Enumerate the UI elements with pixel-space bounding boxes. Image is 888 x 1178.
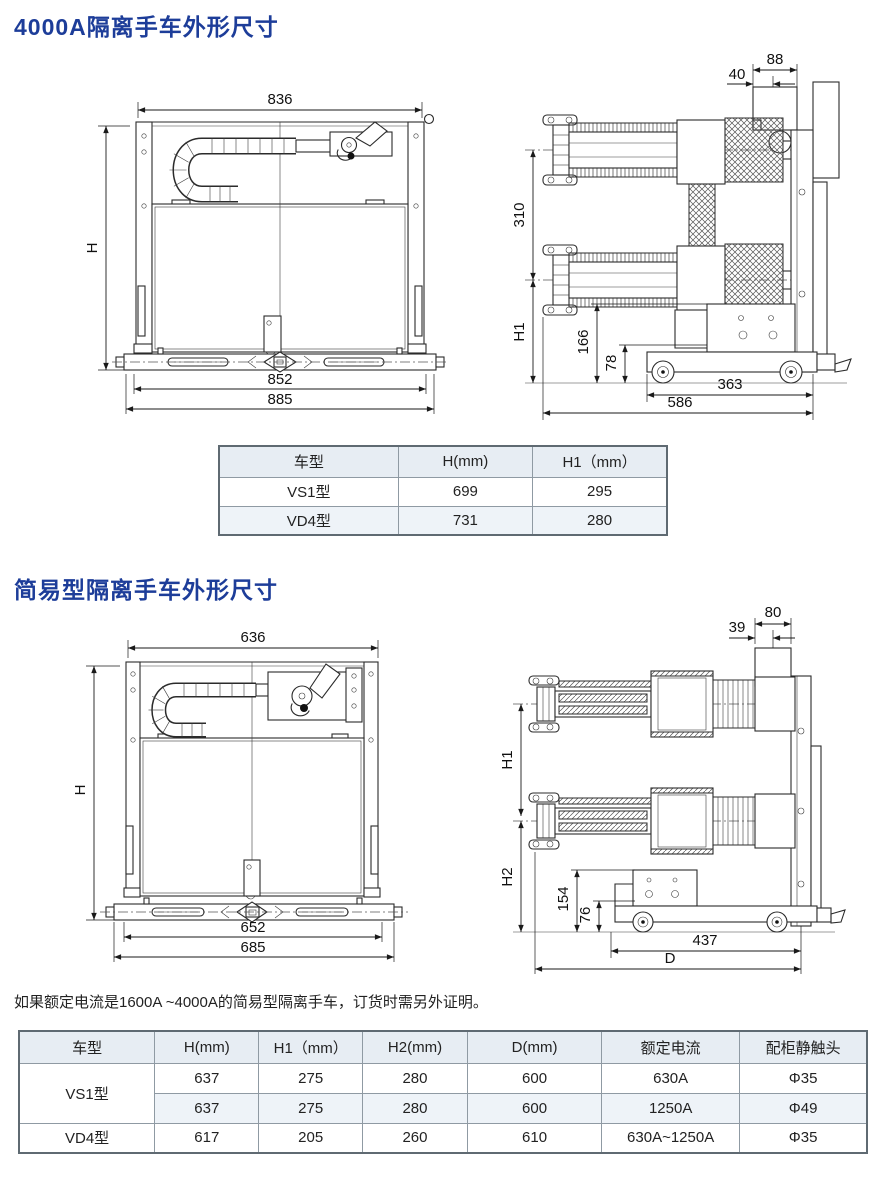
release-hook <box>831 910 845 923</box>
drawing-4000a-front-view: 836 H 852 885 <box>80 86 465 426</box>
table-row: VD4型 617 205 260 610 630A~1250A Φ35 <box>19 1123 867 1153</box>
dim-width-overall: 685 <box>240 939 265 956</box>
column-header: H(mm) <box>155 1031 259 1063</box>
dim-h2: H2 <box>499 867 516 886</box>
column-header: 车型 <box>219 446 398 477</box>
table-cell: 617 <box>155 1123 259 1153</box>
table-cell: 699 <box>398 477 532 506</box>
table-cell: 637 <box>155 1063 259 1093</box>
table-cell: Φ35 <box>740 1063 867 1093</box>
table-cell: 280 <box>362 1063 467 1093</box>
dim-offset-large: 80 <box>765 604 782 621</box>
dim-depth-inner: 363 <box>717 376 742 393</box>
column-header: 配柜静触头 <box>740 1031 867 1063</box>
table-cell: 600 <box>468 1063 602 1093</box>
table-simple-dimensions: 车型 H(mm) H1（mm） H2(mm) D(mm) 额定电流 配柜静触头 … <box>18 1030 868 1154</box>
dim-width-top: 636 <box>240 629 265 646</box>
table-cell: VD4型 <box>19 1123 155 1153</box>
dim-height: H <box>84 243 101 254</box>
column-header: D(mm) <box>468 1031 602 1063</box>
bottom-plate <box>264 316 281 355</box>
table-cell: VD4型 <box>219 506 398 535</box>
dim-height: H <box>72 785 89 796</box>
dim-depth-inner: 437 <box>692 932 717 949</box>
dim-depth-overall: 586 <box>667 394 692 411</box>
table-cell: VS1型 <box>19 1063 155 1123</box>
dim-depth-overall: D <box>665 950 676 967</box>
upper-pole <box>543 115 791 185</box>
table-row: VS1型 699 295 <box>219 477 667 506</box>
drawing-simple-side-view: 80 39 H1 H2 154 76 437 <box>485 596 885 991</box>
table-cell: Φ35 <box>740 1123 867 1153</box>
dim-bracket-height: 166 <box>575 329 592 354</box>
table-cell: 610 <box>468 1123 602 1153</box>
dim-pole-spacing: 310 <box>511 202 528 227</box>
upper-pole <box>529 671 795 737</box>
table-cell: 630A~1250A <box>602 1123 740 1153</box>
table-cell: 205 <box>259 1123 362 1153</box>
dim-offset-small: 40 <box>729 66 746 83</box>
table-cell: 280 <box>533 506 667 535</box>
dim-h1: H1 <box>499 750 516 769</box>
base-and-wheels <box>525 352 851 383</box>
drag-chain <box>149 683 257 738</box>
dim-h1: H1 <box>511 322 528 341</box>
table-cell: 275 <box>259 1093 362 1123</box>
bottom-plate <box>244 860 260 899</box>
latch-mechanism <box>296 122 392 160</box>
table-cell: 280 <box>362 1093 467 1123</box>
center-trunk <box>689 184 715 246</box>
section1-title: 4000A隔离手车外形尺寸 <box>14 8 279 42</box>
side-view-simple-svg: 80 39 H1 H2 154 76 437 <box>485 596 885 986</box>
lower-pole <box>529 788 795 854</box>
table-cell: 275 <box>259 1063 362 1093</box>
table-cell: 260 <box>362 1123 467 1153</box>
drag-chain <box>170 138 297 203</box>
base-rail <box>112 348 448 372</box>
release-hook <box>835 359 851 372</box>
table-cell: 1250A <box>602 1093 740 1123</box>
column-header: 车型 <box>19 1031 155 1063</box>
table-cell: 600 <box>468 1093 602 1123</box>
corner-tab <box>425 115 434 124</box>
catalog-page: 4000A隔离手车外形尺寸 <box>0 0 888 1178</box>
table-cell: 637 <box>155 1093 259 1123</box>
dim-base-height: 76 <box>577 907 594 924</box>
dim-base-height: 78 <box>603 355 620 372</box>
column-header: H1（mm） <box>259 1031 362 1063</box>
column-header: 额定电流 <box>602 1031 740 1063</box>
side-bracket <box>346 668 362 722</box>
column-header: H1（mm） <box>533 446 667 477</box>
dim-width-overall: 885 <box>267 391 292 408</box>
table-row: VD4型 731 280 <box>219 506 667 535</box>
dim-width-rail: 652 <box>240 919 265 936</box>
dim-width-rail: 852 <box>267 371 292 388</box>
front-view-4000a-svg: 836 H 852 885 <box>80 86 465 421</box>
order-note: 如果额定电流是1600A ~4000A的简易型隔离手车，订货时需另外证明。 <box>14 991 488 1012</box>
table-cell: Φ49 <box>740 1093 867 1123</box>
dim-offset-large: 88 <box>767 51 784 68</box>
side-view-4000a-svg: 88 40 310 H1 166 78 363 <box>495 42 888 422</box>
drawing-4000a-side-view: 88 40 310 H1 166 78 363 <box>495 42 888 427</box>
latch-mechanism <box>256 664 362 722</box>
dim-offset-small: 39 <box>729 619 746 636</box>
dim-width-top: 836 <box>267 91 292 108</box>
table-cell: 630A <box>602 1063 740 1093</box>
dim-bracket-height: 154 <box>555 886 572 911</box>
table-4000a-dimensions: 车型 H(mm) H1（mm） VS1型 699 295 VD4型 731 28… <box>218 445 668 536</box>
front-view-simple-svg: 636 H 652 685 <box>70 628 435 980</box>
lower-bracket <box>615 870 697 906</box>
table-row: VS1型 637 275 280 600 630A Φ35 <box>19 1063 867 1093</box>
column-header: H2(mm) <box>362 1031 467 1063</box>
column-header: H(mm) <box>398 446 532 477</box>
table-cell: 731 <box>398 506 532 535</box>
table-cell: 295 <box>533 477 667 506</box>
table-cell: VS1型 <box>219 477 398 506</box>
drawing-simple-front-view: 636 H 652 685 <box>70 628 435 985</box>
section2-title: 简易型隔离手车外形尺寸 <box>14 571 278 605</box>
